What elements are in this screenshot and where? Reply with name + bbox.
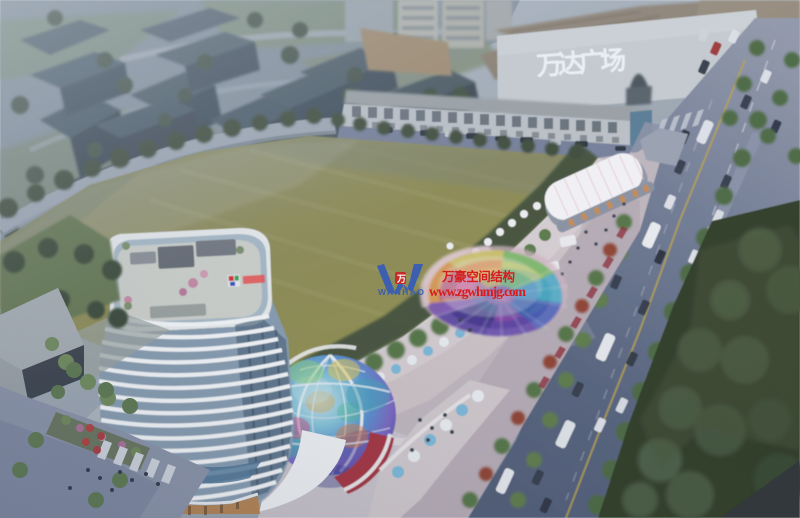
svg-text:www.zgwhmjg.com: www.zgwhmjg.com (429, 284, 527, 299)
svg-text:万豪空间结构: 万豪空间结构 (441, 269, 515, 284)
svg-text:万: 万 (396, 274, 406, 284)
